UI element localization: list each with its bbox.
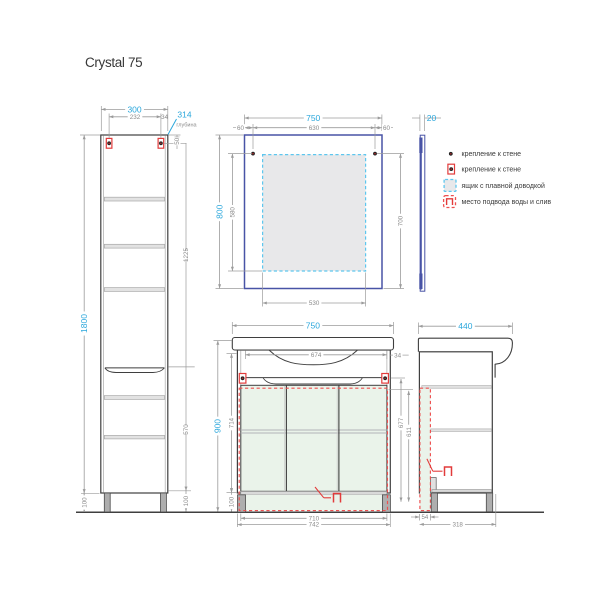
- svg-text:100: 100: [183, 495, 190, 506]
- svg-text:50: 50: [174, 137, 181, 144]
- svg-text:глубина: глубина: [176, 123, 197, 129]
- svg-text:Crystal 75: Crystal 75: [85, 55, 142, 70]
- svg-text:750: 750: [306, 113, 320, 123]
- svg-text:530: 530: [309, 300, 320, 307]
- svg-text:100: 100: [229, 496, 236, 507]
- svg-text:232: 232: [130, 114, 141, 121]
- svg-text:440: 440: [458, 321, 472, 331]
- svg-text:60: 60: [383, 125, 390, 132]
- svg-text:крепление к стене: крепление к стене: [462, 167, 522, 174]
- svg-text:место подвода воды и слив: место подвода воды и слив: [462, 199, 552, 206]
- svg-text:1225: 1225: [183, 248, 190, 262]
- svg-text:314: 314: [177, 109, 191, 119]
- svg-text:20: 20: [427, 113, 437, 123]
- svg-text:580: 580: [230, 207, 237, 218]
- svg-text:54: 54: [422, 515, 429, 521]
- svg-text:742: 742: [309, 522, 320, 529]
- svg-text:ящик с плавной доводкой: ящик с плавной доводкой: [462, 182, 545, 190]
- svg-text:34: 34: [161, 114, 168, 121]
- svg-text:630: 630: [309, 125, 320, 132]
- svg-text:1800: 1800: [79, 314, 89, 333]
- svg-text:750: 750: [306, 320, 320, 330]
- svg-text:800: 800: [214, 204, 224, 218]
- svg-text:900: 900: [213, 419, 223, 433]
- svg-text:677: 677: [398, 417, 405, 428]
- svg-text:34: 34: [394, 352, 401, 359]
- svg-text:570: 570: [183, 424, 190, 435]
- svg-text:714: 714: [229, 417, 236, 428]
- svg-text:611: 611: [406, 426, 413, 436]
- svg-text:674: 674: [311, 352, 322, 359]
- svg-text:700: 700: [398, 215, 405, 226]
- svg-text:крепление к стене: крепление к стене: [462, 151, 522, 158]
- svg-text:300: 300: [127, 104, 141, 114]
- svg-text:60: 60: [237, 125, 244, 132]
- svg-text:100: 100: [81, 497, 88, 508]
- svg-text:318: 318: [452, 522, 463, 529]
